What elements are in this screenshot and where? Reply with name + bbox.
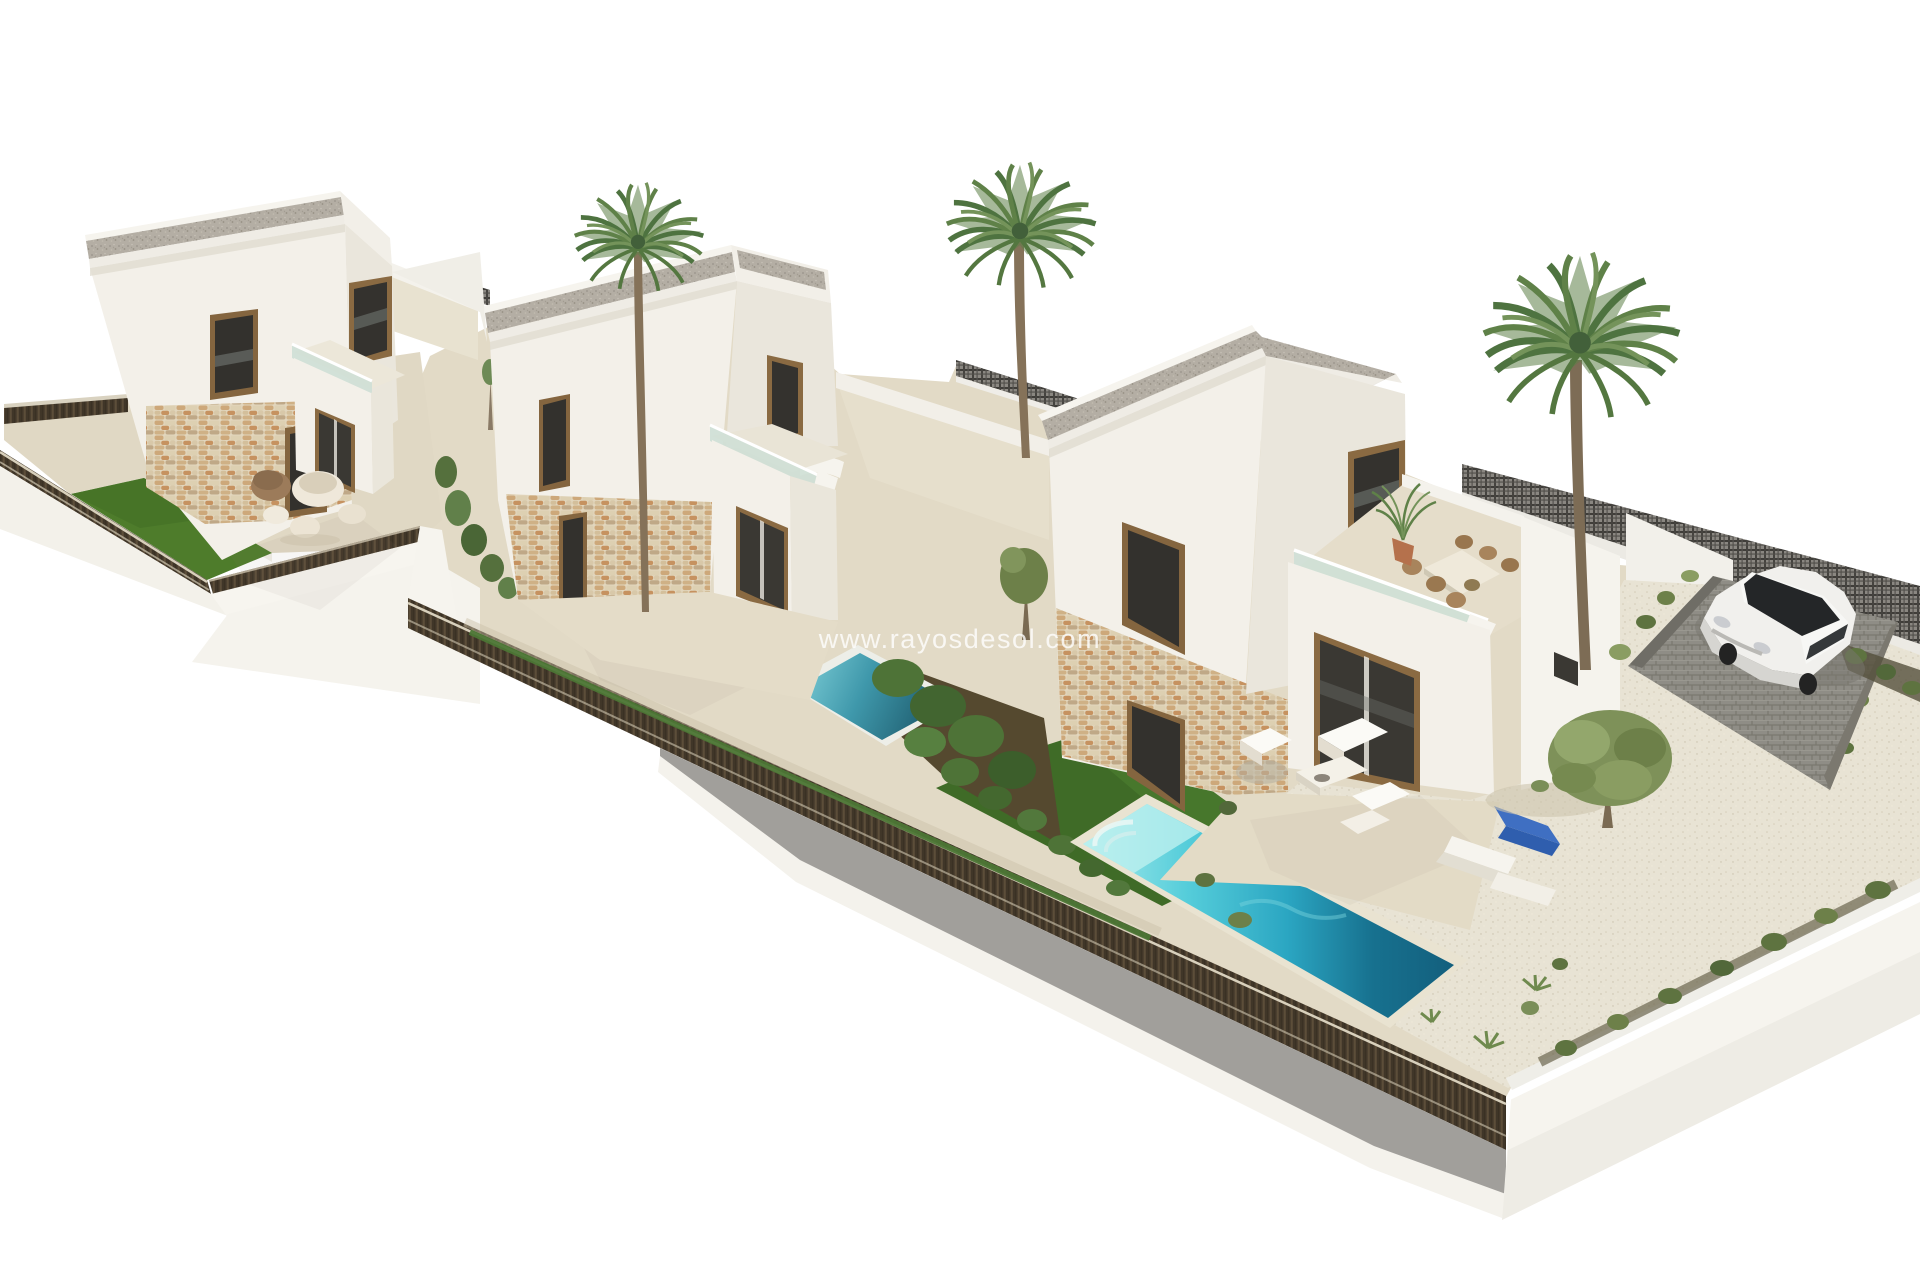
- svg-text:www.rayosdesol.com: www.rayosdesol.com: [818, 624, 1101, 654]
